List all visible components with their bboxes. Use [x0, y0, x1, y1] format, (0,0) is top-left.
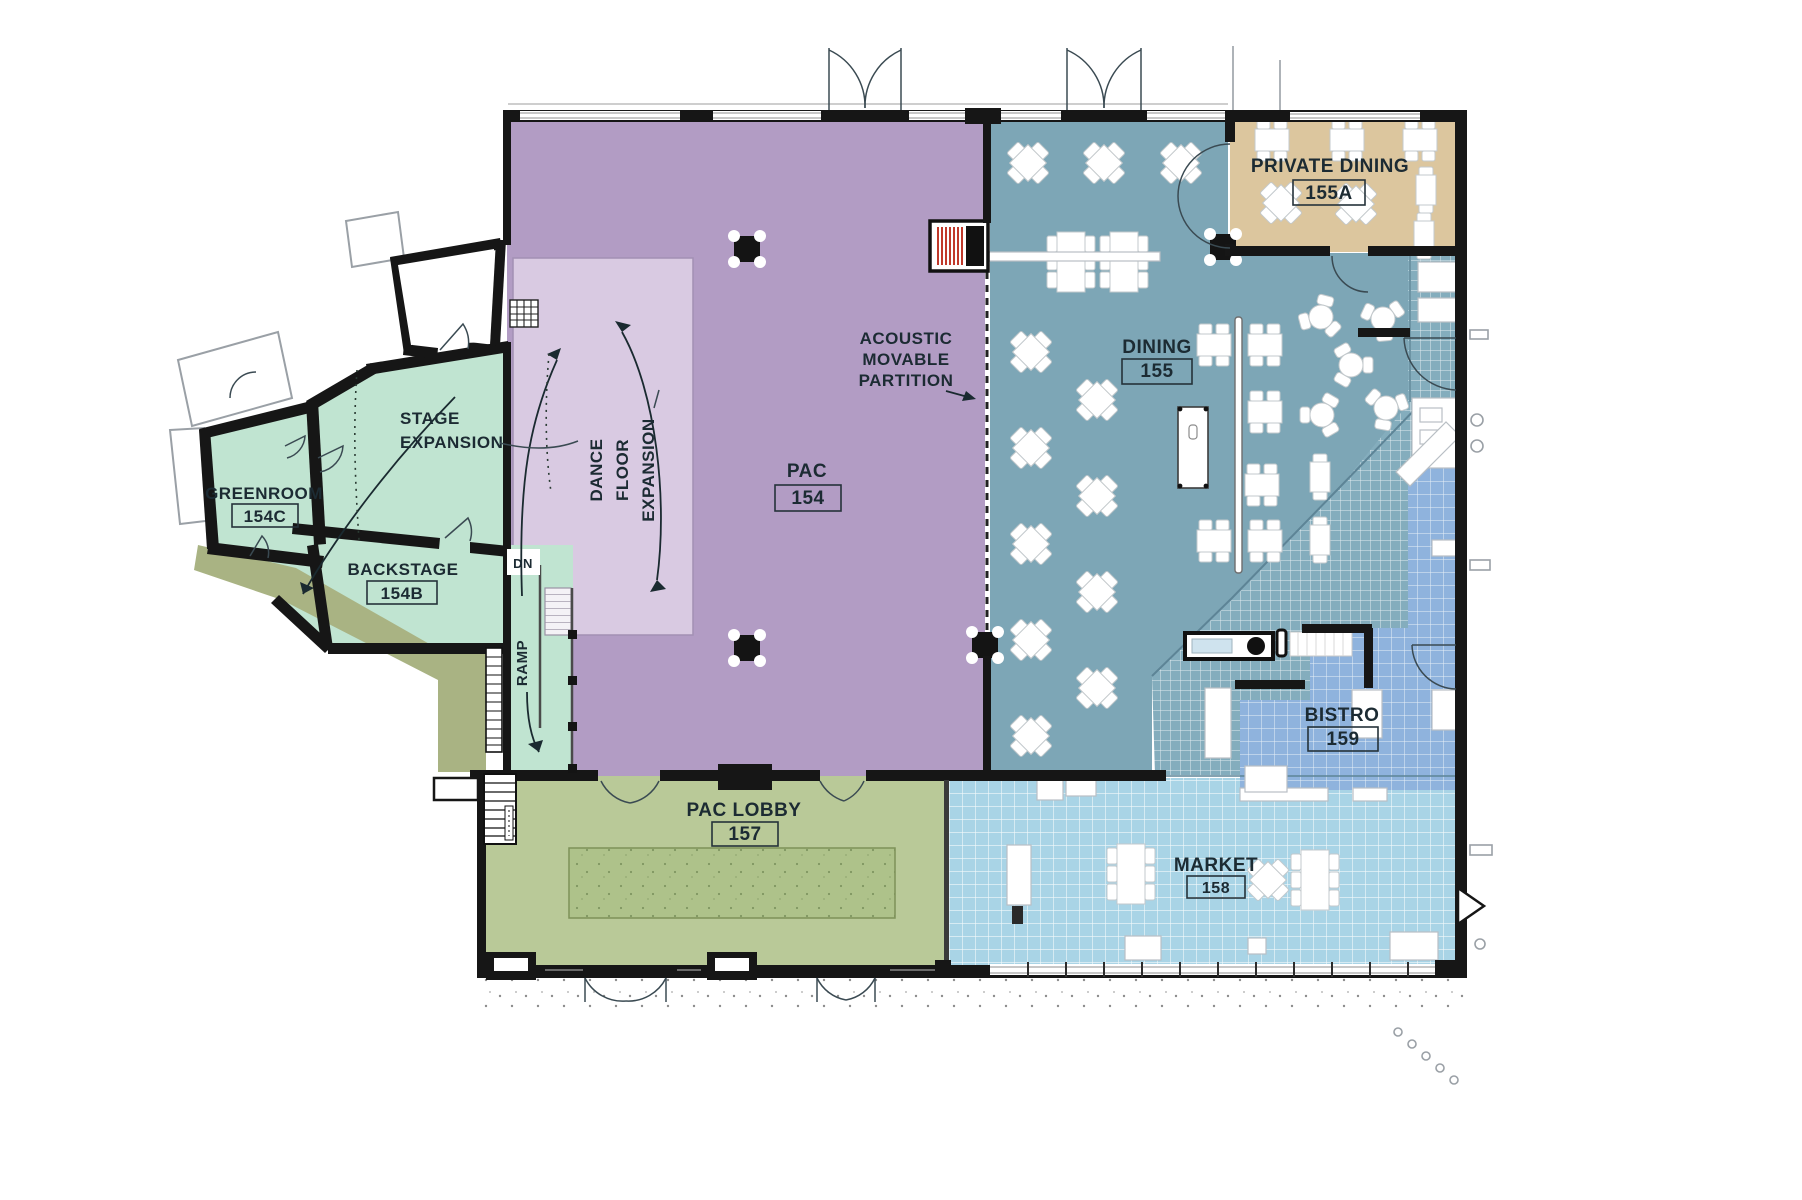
room-label-greenroom: GREENROOM: [205, 484, 323, 503]
room-label-market: MARKET: [1174, 855, 1258, 876]
ramp-landing: [545, 588, 571, 635]
tray-rack: [1290, 632, 1352, 656]
svg-text:STAGE: STAGE: [400, 409, 460, 428]
svg-text:EXPANSION: EXPANSION: [400, 433, 503, 452]
dining-table: [1100, 232, 1148, 292]
room-number-bistro: 159: [1326, 729, 1359, 750]
stage-storage-room: [398, 249, 494, 345]
partition-housing: [930, 221, 988, 271]
floor-plan: PAC 154 DINING 155 PRIVATE DINING 155A P…: [0, 0, 1802, 1200]
annotation-dn: DN: [513, 556, 533, 571]
dining-table: [1047, 232, 1095, 292]
private-dining-table: [1416, 167, 1436, 213]
svg-text:DANCE: DANCE: [587, 439, 606, 502]
room-label-private-dining: PRIVATE DINING: [1251, 156, 1409, 177]
dining-screen: [1235, 317, 1242, 573]
market-exit-door: [1458, 888, 1484, 924]
svg-text:FLOOR: FLOOR: [613, 439, 632, 501]
market-table: [1107, 844, 1155, 904]
dining-table: [1310, 517, 1330, 563]
room-number-greenroom: 154C: [244, 507, 287, 526]
room-number-private-dining: 155A: [1305, 183, 1352, 204]
room-label-backstage: BACKSTAGE: [348, 560, 459, 579]
dance-floor-stair: [510, 300, 538, 327]
room-number-lobby: 157: [728, 824, 761, 845]
dining-table: [1310, 454, 1330, 500]
lobby-stair: [484, 774, 516, 844]
market-table: [1291, 850, 1339, 910]
annotation-ramp: RAMP: [514, 640, 531, 686]
room-label-lobby: PAC LOBBY: [687, 800, 802, 821]
lobby-carpet: [569, 848, 895, 918]
svg-text:EXPANSION: EXPANSION: [639, 418, 658, 521]
svg-text:PARTITION: PARTITION: [859, 371, 954, 390]
room-number-market: 158: [1202, 880, 1230, 897]
room-number-pac: 154: [791, 488, 824, 509]
portable-board: [1178, 407, 1209, 489]
room-number-backstage: 154B: [381, 584, 424, 603]
room-label-dining: DINING: [1122, 337, 1192, 358]
room-label-bistro: BISTRO: [1305, 705, 1380, 726]
room-label-pac: PAC: [787, 461, 827, 482]
svg-text:MOVABLE: MOVABLE: [862, 350, 949, 369]
sidewalk: [480, 978, 1466, 1012]
ramp-railing: [486, 648, 502, 752]
svg-text:ACOUSTIC: ACOUSTIC: [860, 329, 953, 348]
exterior-door-recess: [434, 778, 478, 800]
room-number-dining: 155: [1140, 361, 1173, 382]
floor-plan-page: PAC 154 DINING 155 PRIVATE DINING 155A P…: [0, 0, 1802, 1200]
